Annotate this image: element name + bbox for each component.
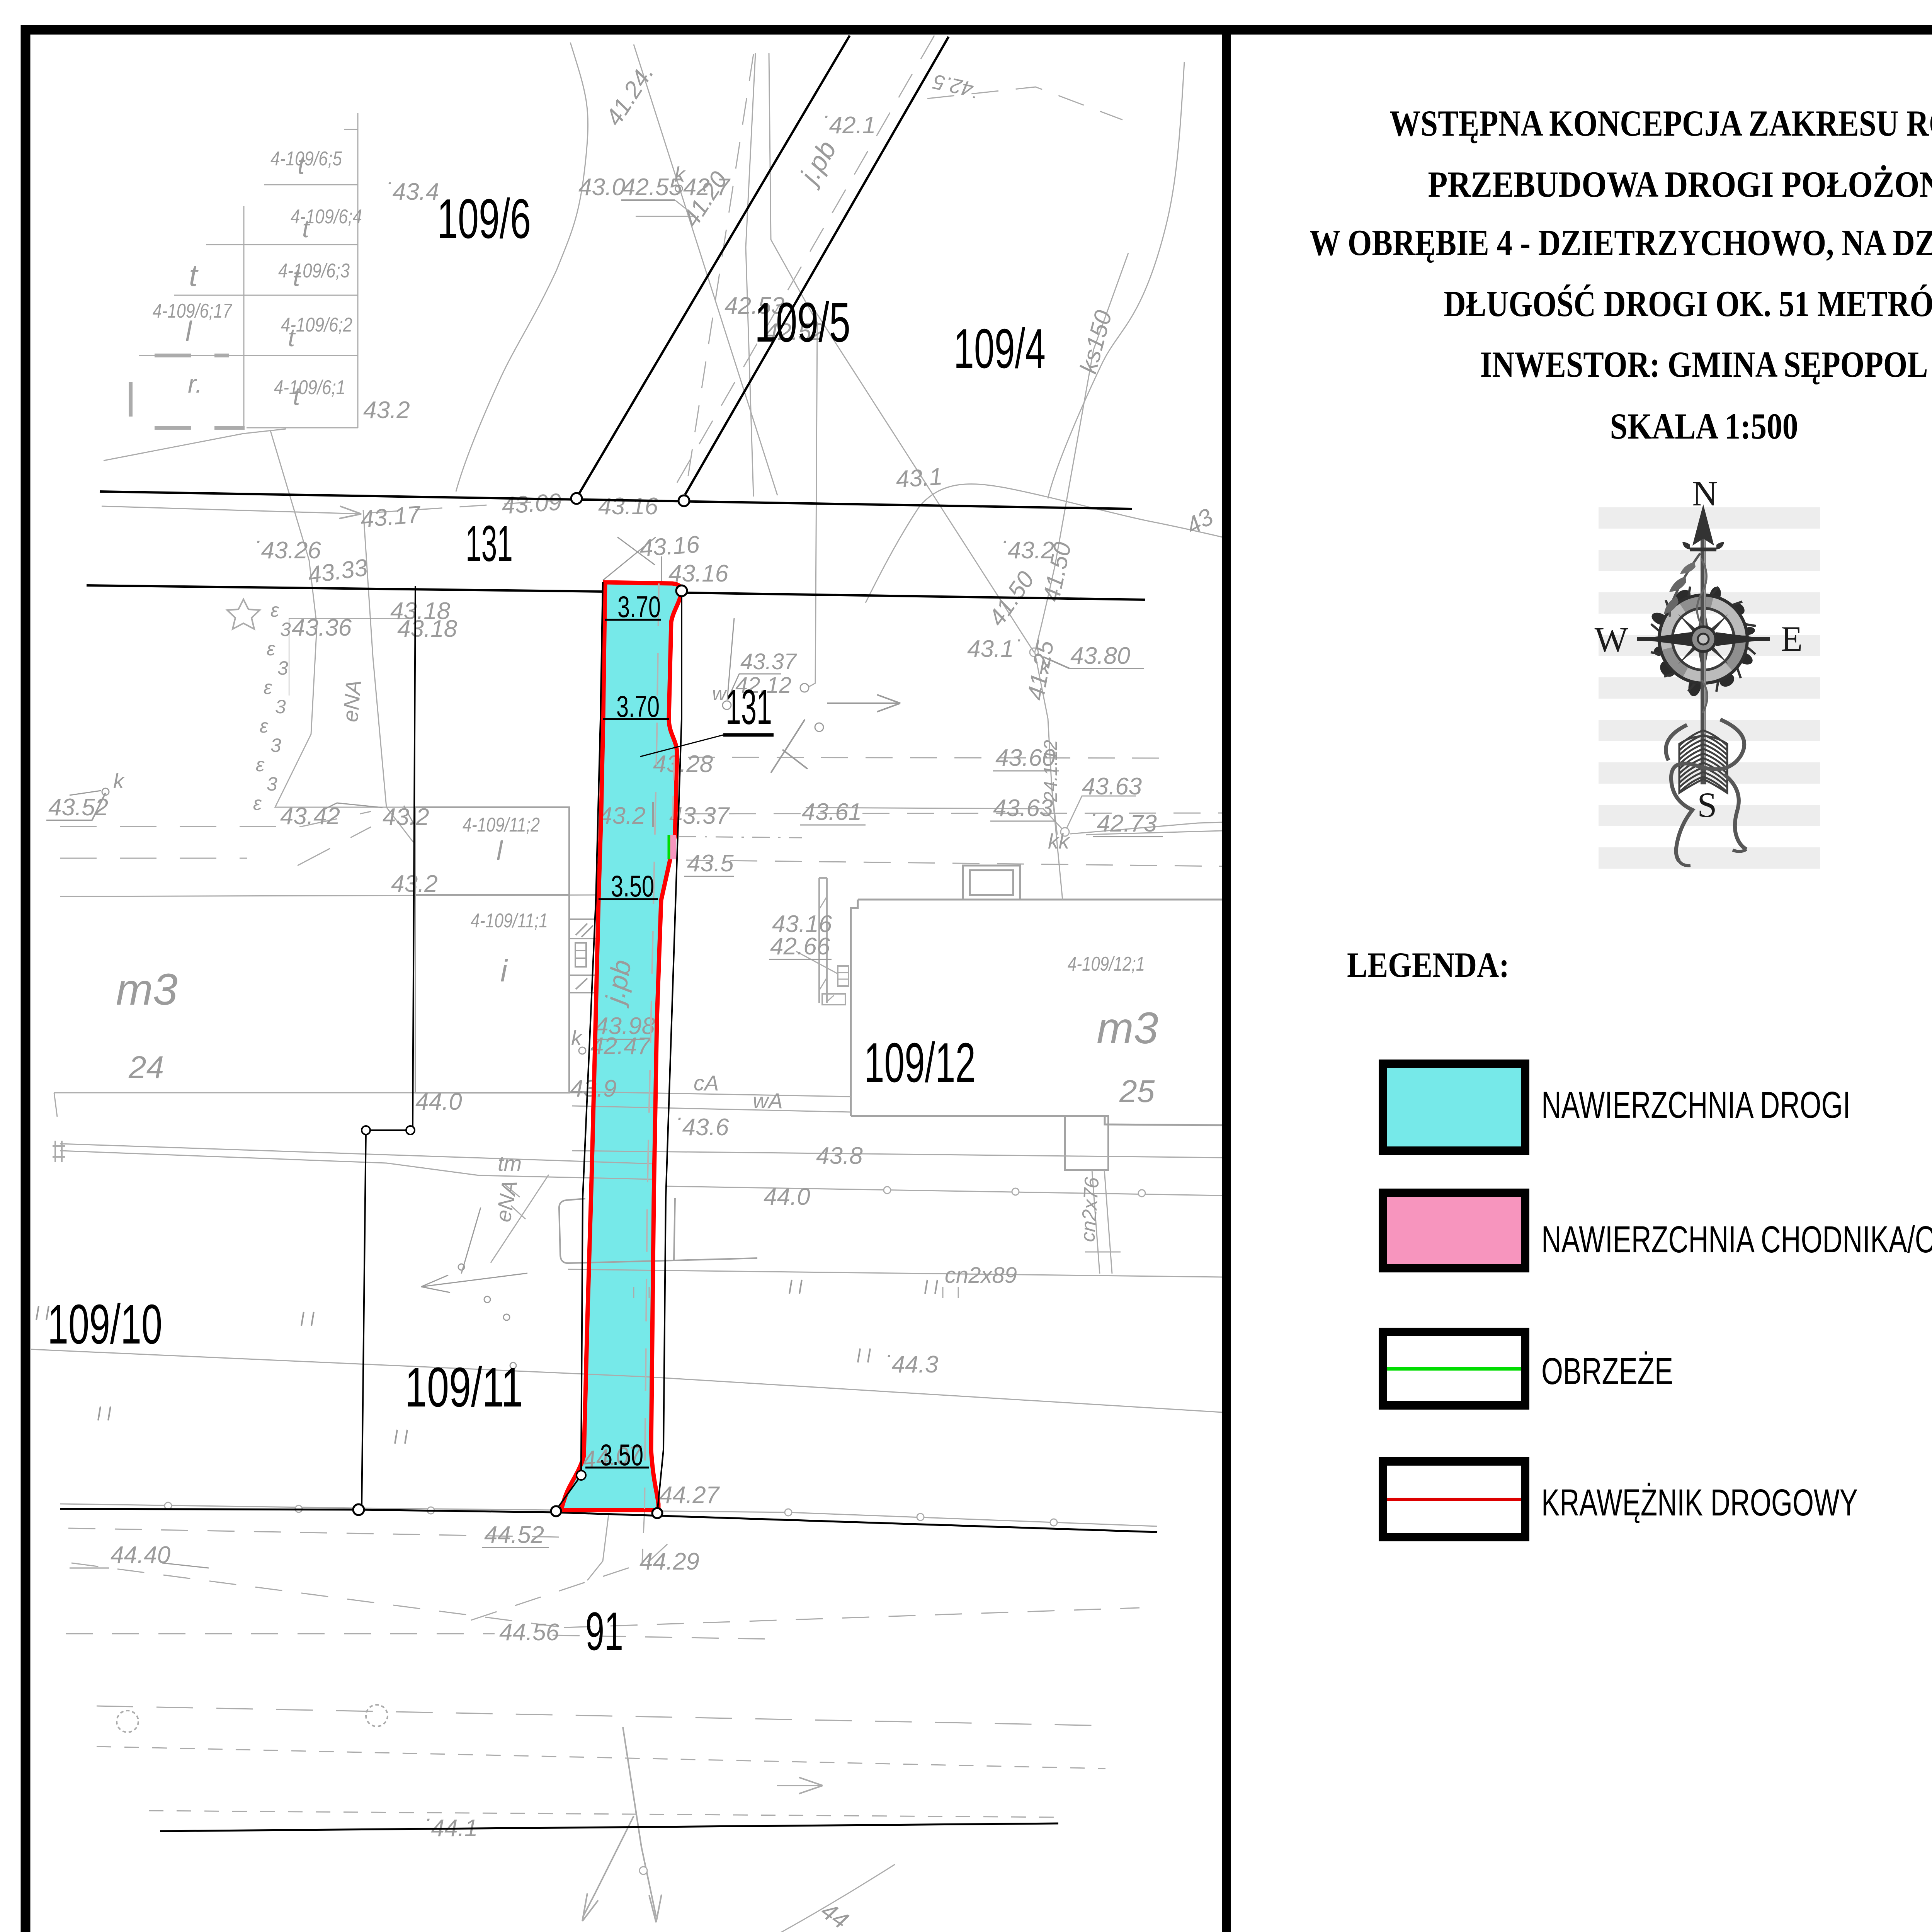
svg-text:cA: cA (694, 1071, 719, 1095)
svg-text:43.17: 43.17 (359, 501, 422, 532)
svg-text:43.28: 43.28 (653, 751, 713, 777)
svg-text:˙44.3: ˙44.3 (884, 1351, 938, 1378)
svg-text:NAWIERZCHNIA CHODNIKA/OPASKI: NAWIERZCHNIA CHODNIKA/OPASKI (1541, 1218, 1932, 1260)
svg-text:˙43.6: ˙43.6 (674, 1114, 729, 1141)
svg-text:43.1: 43.1 (895, 463, 943, 493)
svg-text:43.42: 43.42 (280, 803, 340, 830)
svg-text:˙43.4: ˙43.4 (384, 179, 439, 205)
svg-text:4-109/6;4: 4-109/6;4 (291, 206, 362, 228)
svg-text:t: t (189, 258, 199, 293)
svg-text:N: N (1692, 474, 1718, 513)
svg-text:3.50: 3.50 (611, 869, 654, 903)
svg-text:4-109/6;1: 4-109/6;1 (274, 376, 345, 399)
svg-text:43.1˙: 43.1˙ (967, 636, 1022, 662)
svg-text:cn2x89: cn2x89 (945, 1263, 1017, 1288)
svg-text:3.50: 3.50 (600, 1438, 643, 1472)
svg-text:44.40: 44.40 (111, 1542, 170, 1568)
svg-text:tm: tm (498, 1151, 522, 1175)
svg-text:44.52: 44.52 (484, 1522, 544, 1548)
svg-text:43.2: 43.2 (363, 397, 410, 423)
svg-text:˙42.73: ˙42.73 (1089, 810, 1157, 837)
svg-text:3.70: 3.70 (616, 689, 660, 723)
svg-text:INWESTOR: GMINA SĘPOPOL: INWESTOR: GMINA SĘPOPOL (1480, 344, 1928, 385)
svg-text:3.70: 3.70 (617, 590, 661, 624)
svg-text:kk: kk (1048, 829, 1070, 853)
svg-text:t: t (302, 214, 310, 243)
svg-text:91: 91 (585, 1601, 623, 1662)
svg-text:43.18: 43.18 (397, 616, 457, 642)
svg-text:43.2: 43.2 (599, 803, 646, 829)
svg-text:OBRZEŻE: OBRZEŻE (1541, 1350, 1673, 1392)
svg-text:WSTĘPNA KONCEPCJA ZAKRESU ROBÓ: WSTĘPNA KONCEPCJA ZAKRESU ROBÓT (1389, 103, 1932, 144)
svg-text:4-109/11;1: 4-109/11;1 (471, 910, 548, 932)
svg-text:24: 24 (128, 1050, 164, 1085)
svg-text:3: 3 (267, 773, 277, 795)
svg-text:44.29: 44.29 (639, 1548, 699, 1575)
svg-text:131: 131 (466, 515, 513, 572)
svg-text:ε: ε (256, 754, 265, 776)
svg-text:r.: r. (188, 369, 202, 398)
svg-text:43.37: 43.37 (740, 649, 798, 674)
svg-text:˙43.26: ˙43.26 (253, 537, 321, 564)
svg-text:24.1.12: 24.1.12 (1041, 740, 1061, 802)
svg-text:wA: wA (753, 1088, 783, 1113)
svg-text:KRAWĘŻNIK DROGOWY: KRAWĘŻNIK DROGOWY (1541, 1481, 1858, 1524)
svg-text:42.66: 42.66 (770, 933, 830, 960)
svg-text:k: k (571, 1026, 583, 1050)
svg-text:43.5: 43.5 (687, 850, 734, 877)
svg-text:l: l (497, 835, 503, 866)
svg-text:4-109/6;5: 4-109/6;5 (270, 148, 342, 170)
svg-text:4-109/6;3: 4-109/6;3 (278, 260, 350, 282)
svg-text:ε: ε (253, 793, 262, 814)
svg-text:42.55: 42.55 (622, 174, 682, 201)
svg-text:i: i (500, 954, 508, 988)
svg-text:l: l (185, 316, 192, 347)
svg-text:ε: ε (260, 715, 269, 737)
svg-text:4-109/12;1: 4-109/12;1 (1068, 953, 1145, 975)
svg-text:109/10: 109/10 (48, 1293, 162, 1355)
svg-text:S: S (1697, 785, 1717, 825)
svg-text:109/4: 109/4 (954, 317, 1046, 380)
svg-text:W OBRĘBIE 4 - DZIETRZYCHOWO, N: W OBRĘBIE 4 - DZIETRZYCHOWO, NA DZIAŁCE:… (1310, 222, 1932, 263)
svg-text:LEGENDA:: LEGENDA: (1347, 945, 1509, 985)
svg-text:W: W (1595, 620, 1628, 659)
svg-text:t: t (298, 151, 306, 179)
svg-text:43.0: 43.0 (578, 174, 625, 201)
svg-text:m3: m3 (116, 965, 178, 1014)
svg-text:109/12: 109/12 (864, 1031, 976, 1094)
svg-text:ε: ε (267, 638, 276, 660)
svg-text:43.16: 43.16 (598, 493, 658, 520)
svg-text:43.80: 43.80 (1070, 643, 1130, 669)
svg-text:25: 25 (1119, 1074, 1155, 1109)
svg-text:109/6: 109/6 (437, 187, 531, 250)
svg-text:m3: m3 (1097, 1003, 1158, 1053)
svg-text:ε: ε (270, 599, 279, 621)
svg-text:cn2x76: cn2x76 (1077, 1176, 1104, 1242)
svg-text:3: 3 (277, 657, 288, 679)
svg-text:3: 3 (270, 735, 281, 756)
svg-text:43.63: 43.63 (1082, 773, 1142, 800)
svg-text:4-109/11;2: 4-109/11;2 (463, 814, 540, 836)
svg-text:DŁUGOŚĆ DROGI OK. 51 METRÓW: DŁUGOŚĆ DROGI OK. 51 METRÓW (1444, 283, 1932, 324)
svg-text:k: k (113, 769, 125, 793)
svg-text:42.47: 42.47 (590, 1033, 651, 1060)
svg-text:131: 131 (726, 680, 772, 735)
svg-text:43.16: 43.16 (639, 531, 701, 562)
svg-text:43.52: 43.52 (48, 794, 108, 821)
svg-text:eNA: eNA (338, 679, 366, 723)
svg-text:43.8: 43.8 (816, 1143, 863, 1169)
svg-text:SKALA 1:500: SKALA 1:500 (1610, 406, 1798, 447)
svg-text:t: t (293, 263, 301, 291)
svg-text:43.61: 43.61 (802, 799, 862, 825)
svg-text:E: E (1781, 619, 1803, 658)
svg-text:43.2: 43.2 (383, 804, 429, 830)
svg-text:44.0: 44.0 (415, 1088, 462, 1115)
svg-text:109/11: 109/11 (405, 1356, 523, 1418)
svg-text:44.0: 44.0 (764, 1184, 810, 1210)
svg-text:44.56: 44.56 (499, 1619, 560, 1646)
svg-text:44.27: 44.27 (659, 1482, 720, 1509)
svg-text:3: 3 (275, 696, 286, 718)
svg-text:t: t (293, 382, 301, 410)
svg-text:t: t (288, 323, 296, 352)
svg-text:PRZEBUDOWA DROGI POŁOŻONEJ: PRZEBUDOWA DROGI POŁOŻONEJ (1428, 164, 1932, 205)
svg-text:˙42.1: ˙42.1 (821, 112, 876, 139)
svg-text:ε: ε (264, 677, 272, 698)
svg-text:109/5: 109/5 (755, 291, 850, 354)
svg-text:NAWIERZCHNIA DROGI: NAWIERZCHNIA DROGI (1541, 1084, 1850, 1126)
svg-text:4-109/6;17: 4-109/6;17 (153, 300, 233, 322)
